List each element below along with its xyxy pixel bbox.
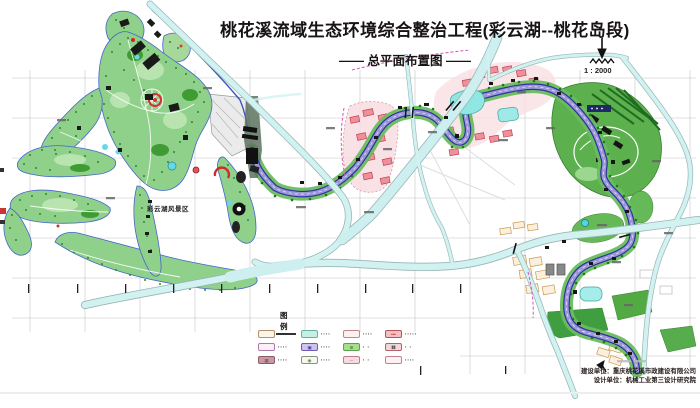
legend-label: ▪▪▪▪ bbox=[321, 358, 331, 362]
legend-swatch: ••• bbox=[385, 330, 402, 338]
drawing-subtitle: —— 总平面布置图 —— bbox=[295, 50, 515, 69]
zigzag-scale-icon bbox=[590, 59, 614, 63]
construction-unit-credit: 建设单位：重庆桃花溪市政建设有限公司 bbox=[480, 366, 699, 375]
legend-item: ▪▪▪▪ bbox=[343, 330, 373, 338]
legend-swatch: ▦ bbox=[258, 356, 275, 364]
legend-item: ▣ ▪▪▪▪ bbox=[301, 343, 331, 351]
legend-swatch: ◉ bbox=[301, 356, 318, 364]
legend-label: ▪ ▪ bbox=[405, 345, 412, 349]
legend-label: ▪ ▪ bbox=[363, 358, 370, 362]
legend-label: ▪ ▪ bbox=[363, 345, 370, 349]
legend-item: ▦ ▪▪▪▪ bbox=[258, 356, 288, 364]
legend-item: ◉ ▪▪▪▪ bbox=[301, 356, 331, 364]
legend-swatch bbox=[301, 330, 318, 338]
legend-swatch bbox=[258, 343, 275, 351]
legend-swatch: ≋ bbox=[343, 343, 360, 351]
legend-item: ▪▪▪▪ bbox=[385, 356, 415, 364]
edge-marks bbox=[0, 168, 6, 224]
legend-item: ⦀⦀ ▪ ▪ bbox=[385, 343, 412, 351]
legend-swatch: ▣ bbox=[301, 343, 318, 351]
legend-item: ▪▪▪▪ bbox=[301, 330, 331, 338]
legend-label: ▪▪▪▪ bbox=[278, 332, 288, 336]
carousel-icon bbox=[193, 167, 199, 173]
plan-drawing-canvas: 桃花溪流域生态环境综合整治工程(彩云湖--桃花岛段) —— 总平面布置图 —— … bbox=[0, 0, 700, 408]
legend-swatch bbox=[258, 330, 275, 338]
legend-label: ▪▪▪▪▪ bbox=[405, 332, 417, 336]
legend-label: ▪▪▪▪ bbox=[363, 332, 373, 336]
design-unit-credit: 设计单位：机械工业第三设计研究院 bbox=[480, 375, 699, 384]
dark-sign-label bbox=[587, 105, 611, 112]
drawing-title: 桃花溪流域生态环境综合整治工程(彩云湖--桃花岛段) bbox=[150, 16, 700, 41]
legend-swatch: ⦀⦀ bbox=[385, 343, 402, 351]
legend-item: ▪▪▪▪ bbox=[258, 343, 288, 351]
legend-swatch: ─ bbox=[343, 356, 360, 364]
legend-item: ≋ ▪ ▪ bbox=[343, 343, 370, 351]
area-label-caiyun-lake: 彩云湖风景区 bbox=[147, 203, 189, 213]
scale-label: 1 : 2000 bbox=[584, 66, 644, 75]
legend-label: ▪▪▪▪ bbox=[321, 345, 331, 349]
legend-label: ▪▪▪▪ bbox=[405, 358, 415, 362]
bottom-divider bbox=[0, 392, 700, 394]
legend-item: ••• ▪▪▪▪▪ bbox=[385, 330, 417, 338]
legend-item: ─ ▪ ▪ bbox=[343, 356, 370, 364]
legend-label: ▪▪▪▪ bbox=[278, 345, 288, 349]
legend-swatch bbox=[385, 356, 402, 364]
legend-item: ▪▪▪▪ bbox=[258, 330, 288, 338]
legend-swatch bbox=[343, 330, 360, 338]
legend-label: ▪▪▪▪ bbox=[278, 358, 288, 362]
legend-label: ▪▪▪▪ bbox=[321, 332, 331, 336]
